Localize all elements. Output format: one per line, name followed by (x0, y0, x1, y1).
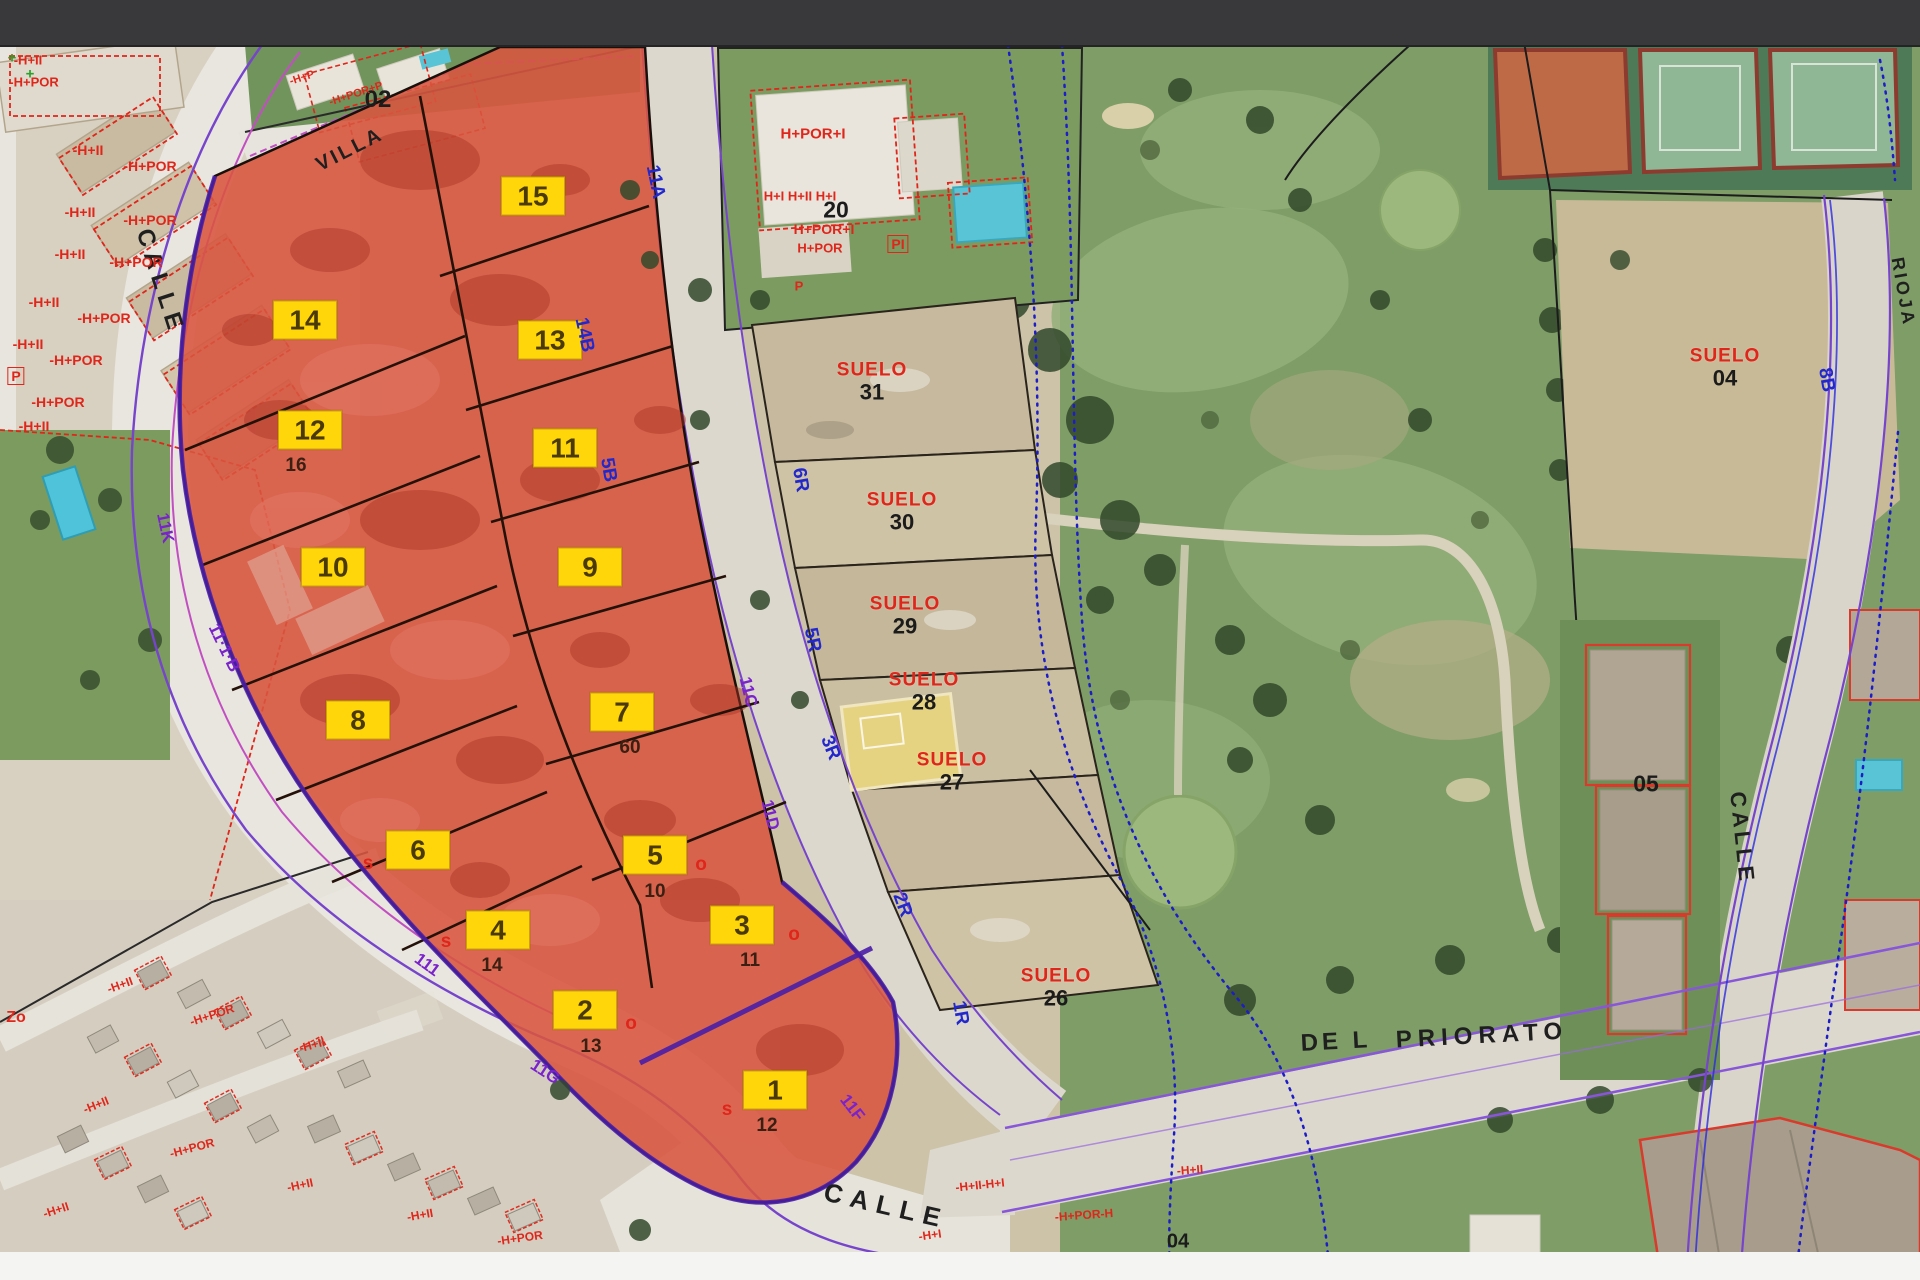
cadastral-annotation: 20 (823, 197, 849, 224)
parcel-subnote: o (788, 924, 800, 946)
parcel-label-3[interactable]: 3 (710, 906, 774, 945)
parcel-subnote: 12 (756, 1115, 777, 1137)
parcel-subnote: 60 (619, 737, 640, 759)
cadastral-annotation: -H+II (55, 246, 86, 262)
parcel-subnote: 16 (285, 455, 306, 477)
parcel-label-12[interactable]: 12 (278, 411, 342, 450)
suelo-label-26: SUELO26 (1021, 966, 1091, 1009)
cadastral-annotation: -H+POR (123, 212, 176, 228)
parcel-subnote: 11 (740, 950, 760, 972)
suelo-label-28: SUELO28 (889, 670, 959, 713)
parcel-label-1[interactable]: 1 (743, 1071, 807, 1110)
tennis-courts (1488, 44, 1912, 190)
suelo-label-31: SUELO31 (837, 360, 907, 403)
parcel-label-8[interactable]: 8 (326, 701, 390, 740)
parcel-subnote: o (695, 854, 707, 876)
parcel-label-7[interactable]: 7 (590, 693, 654, 732)
cadastral-annotation: P (795, 279, 804, 294)
suelo-label-29: SUELO29 (870, 594, 940, 637)
cadastral-annotation: H+POR+I (780, 126, 845, 143)
villa-plot-20 (688, 48, 1082, 330)
cadastral-annotation: H+POR (797, 241, 842, 256)
cadastral-annotation: -H+II (13, 336, 44, 352)
cadastral-annotation: 04 (1167, 1231, 1189, 1254)
parcel-label-15[interactable]: 15 (501, 177, 565, 216)
street-code-5B: 5B (595, 456, 621, 484)
cadastral-annotation: -H+POR (77, 310, 130, 326)
cadastral-annotation: + (26, 66, 35, 83)
parcel-label-9[interactable]: 9 (558, 548, 622, 587)
cadastral-annotation: -H+POR (123, 158, 176, 174)
cadastral-annotation: + (8, 50, 17, 67)
cadastral-annotation: -H+II (1176, 1162, 1203, 1178)
cadastral-annotation: -H+POR (49, 352, 102, 368)
parcel-label-5[interactable]: 5 (623, 836, 687, 875)
aerial-map-canvas[interactable] (0, 0, 1920, 1280)
suelo-label-30: SUELO30 (867, 490, 937, 533)
parcel-subnote: s (363, 853, 374, 875)
cadastral-annotation: -H+II (65, 204, 96, 220)
street-code-1R: 1R (947, 999, 973, 1027)
cadastral-annotation: H+POR+I (794, 221, 855, 237)
parcel-subnote: 10 (644, 881, 665, 903)
parcel-label-11[interactable]: 11 (533, 429, 597, 468)
cadastral-annotation: -H+II (29, 294, 60, 310)
parcel-label-4[interactable]: 4 (466, 911, 530, 950)
parcel-label-14[interactable]: 14 (273, 301, 337, 340)
street-code-5R: 5R (799, 626, 826, 654)
parcel-subnote: 13 (580, 1036, 601, 1058)
parcel-subnote: s (722, 1099, 733, 1121)
cadastral-annotation: PI (887, 235, 908, 253)
cadastral-annotation: 05 (1633, 771, 1659, 798)
top-toolbar-bar (0, 0, 1920, 47)
bottom-margin-strip (0, 1252, 1920, 1280)
parcel-label-10[interactable]: 10 (301, 548, 365, 587)
parcel-subnote: s (441, 931, 452, 953)
cadastral-annotation: -H+POR (31, 394, 84, 410)
street-name: DE L (1300, 1026, 1372, 1058)
cadastral-annotation: -H+II (19, 418, 50, 434)
street-code-8B: 8B (1813, 366, 1839, 394)
parcel-subnote: o (625, 1013, 637, 1035)
parcel-label-6[interactable]: 6 (386, 831, 450, 870)
parcel-label-2[interactable]: 2 (553, 991, 617, 1030)
cadastral-annotation: -H+POR (109, 254, 162, 270)
cadastral-annotation: -H+II (73, 142, 104, 158)
parcel-subnote: 14 (481, 955, 502, 977)
map-viewer: 1s122o133o114s145o106s760891011121613141… (0, 0, 1920, 1280)
cadastral-annotation: P (7, 367, 24, 385)
suelo-label-27: SUELO27 (917, 750, 987, 793)
street-code-6R: 6R (787, 466, 813, 494)
cadastral-annotation: Zo (6, 1009, 26, 1027)
suelo-label-04: SUELO04 (1690, 346, 1760, 389)
